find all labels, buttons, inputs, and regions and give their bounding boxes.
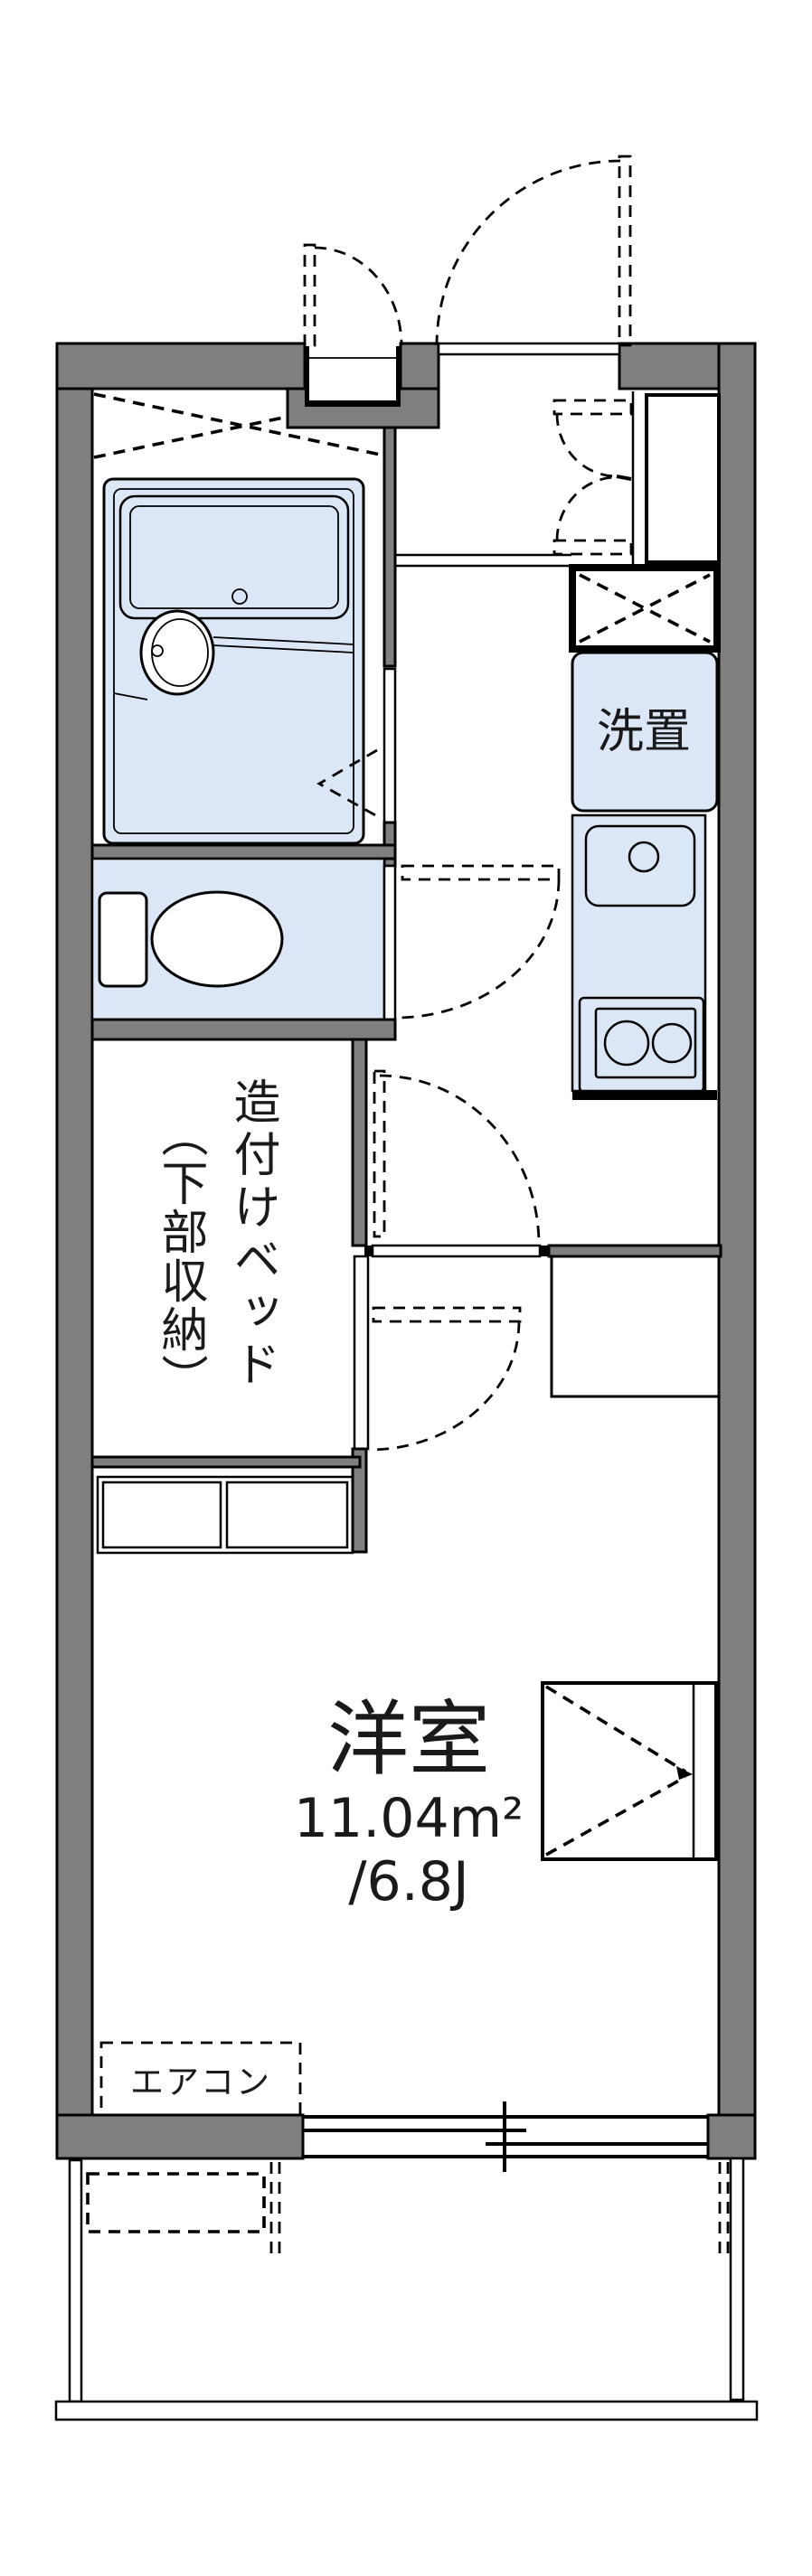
wall-toilet-bed (92, 1020, 395, 1039)
shoe-cabinet-arc-bottom (557, 477, 617, 541)
balcony-wall-left (70, 2160, 81, 2402)
counter-end-band (572, 1090, 717, 1100)
entry-doors (305, 156, 630, 345)
floorplan-page: 造付けベッド （下部収納） 洗置 (0, 0, 812, 2576)
toilet-door-leaf (402, 866, 559, 879)
shoe-cabinet-arc-tick (617, 476, 631, 479)
balcony-window (303, 2101, 708, 2172)
wall-bed-bottom (92, 1457, 360, 1467)
bay-window-dash1 (546, 1687, 685, 1772)
bed-room-door (369, 1308, 520, 1450)
wall-left (57, 343, 92, 2158)
toilet-doorway (384, 866, 395, 1020)
kitchen: 洗置 (572, 568, 717, 1100)
entry-door-arc (437, 161, 620, 345)
shoe-cabinet (647, 395, 719, 562)
wall-bath-toilet (92, 845, 395, 859)
kitchen-counter (572, 815, 705, 1091)
entry-door-leaf (619, 156, 630, 345)
storage-boxes-outer (98, 1477, 353, 1553)
bathroom-doorway (384, 669, 395, 823)
porch-sill (305, 400, 401, 407)
floorplan-drawing: 造付けベッド （下部収納） 洗置 (0, 0, 812, 2576)
porch-side-left (305, 346, 309, 407)
room-door-leaf (374, 1071, 384, 1236)
bed-room: 造付けベッド （下部収納） (92, 1039, 368, 1553)
room-doorway-pier-left (364, 1246, 373, 1256)
shoe-cabinet-leaf-bottom (554, 541, 631, 554)
bed-label-line1: 造付けベッド (225, 1077, 279, 1392)
room-name-label: 洋室 (327, 1692, 490, 1787)
room-area-jo-label: /6.8J (348, 1850, 468, 1913)
bay-window-box (543, 1683, 716, 1859)
wall-bed-hall (353, 1039, 366, 1246)
western-room: 洋室 11.04m² /6.8J エアコン (101, 1683, 716, 2115)
room-doorway (373, 1246, 540, 1256)
washer-space-box (572, 568, 717, 649)
porch-side-right (396, 346, 401, 407)
refrigerator-space (552, 1256, 719, 1396)
wall-hall-bottom (549, 1246, 721, 1256)
room-doorway-pier-right (539, 1246, 549, 1256)
genkan (395, 391, 719, 567)
storage-box-1 (103, 1482, 221, 1547)
bed-label-line2: （下部収納） (153, 1110, 207, 1403)
toilet-bowl (152, 892, 282, 986)
wall-bath-hall (384, 428, 395, 666)
wall-right (719, 343, 755, 2158)
bed-door-leaf (373, 1308, 520, 1321)
toilet-room (92, 859, 559, 1039)
bay-window-arrow (676, 1766, 693, 1780)
toilet-tank (99, 893, 146, 986)
room-area-m2-label: 11.04m² (294, 1787, 524, 1850)
bed-door-arc (369, 1321, 519, 1450)
balcony-slab (56, 2402, 757, 2420)
porch-recess (305, 346, 401, 400)
shoe-cabinet-arc-top (557, 414, 617, 476)
balcony (56, 2158, 757, 2420)
laundry-box-label: 洗置 (597, 705, 691, 759)
room-door-arc (380, 1076, 539, 1245)
hall-room-boundary (364, 1071, 721, 1396)
porch-window-arc (315, 248, 401, 345)
balcony-wall-right (731, 2158, 743, 2400)
bay-window-dash2 (546, 1777, 685, 1855)
wall-bottom-left (57, 2115, 303, 2158)
wall-top-porch-pier (401, 343, 439, 389)
porch-window-leaf (305, 245, 315, 345)
shoe-cabinet-leaf-top (554, 400, 631, 414)
storage-x-line2 (94, 417, 288, 457)
storage-box-2 (227, 1482, 347, 1547)
entry-door-lintel (439, 343, 619, 354)
balcony-equipment-box (88, 2174, 264, 2232)
bed-doorway (354, 1256, 368, 1449)
aircon-label: エアコン (130, 2063, 271, 2101)
bathroom (94, 394, 389, 843)
toilet-door-arc (395, 879, 559, 1018)
wall-bottom-right (708, 2115, 755, 2158)
entry-porch (305, 343, 619, 407)
wall-top-left (57, 343, 305, 389)
